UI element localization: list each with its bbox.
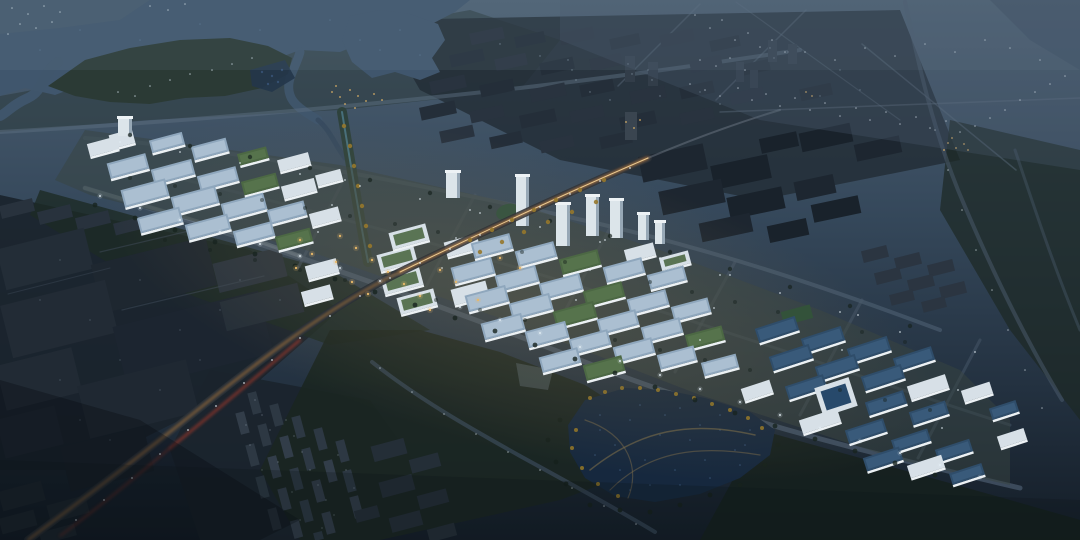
office-tower <box>445 170 461 198</box>
aerial-night-rendering <box>0 0 1080 540</box>
office-tower <box>585 194 600 236</box>
office-tower <box>654 220 666 244</box>
city-masterplan-render <box>0 0 1080 540</box>
office-tower <box>555 202 571 246</box>
office-tower <box>637 212 650 240</box>
office-tower <box>609 198 624 238</box>
